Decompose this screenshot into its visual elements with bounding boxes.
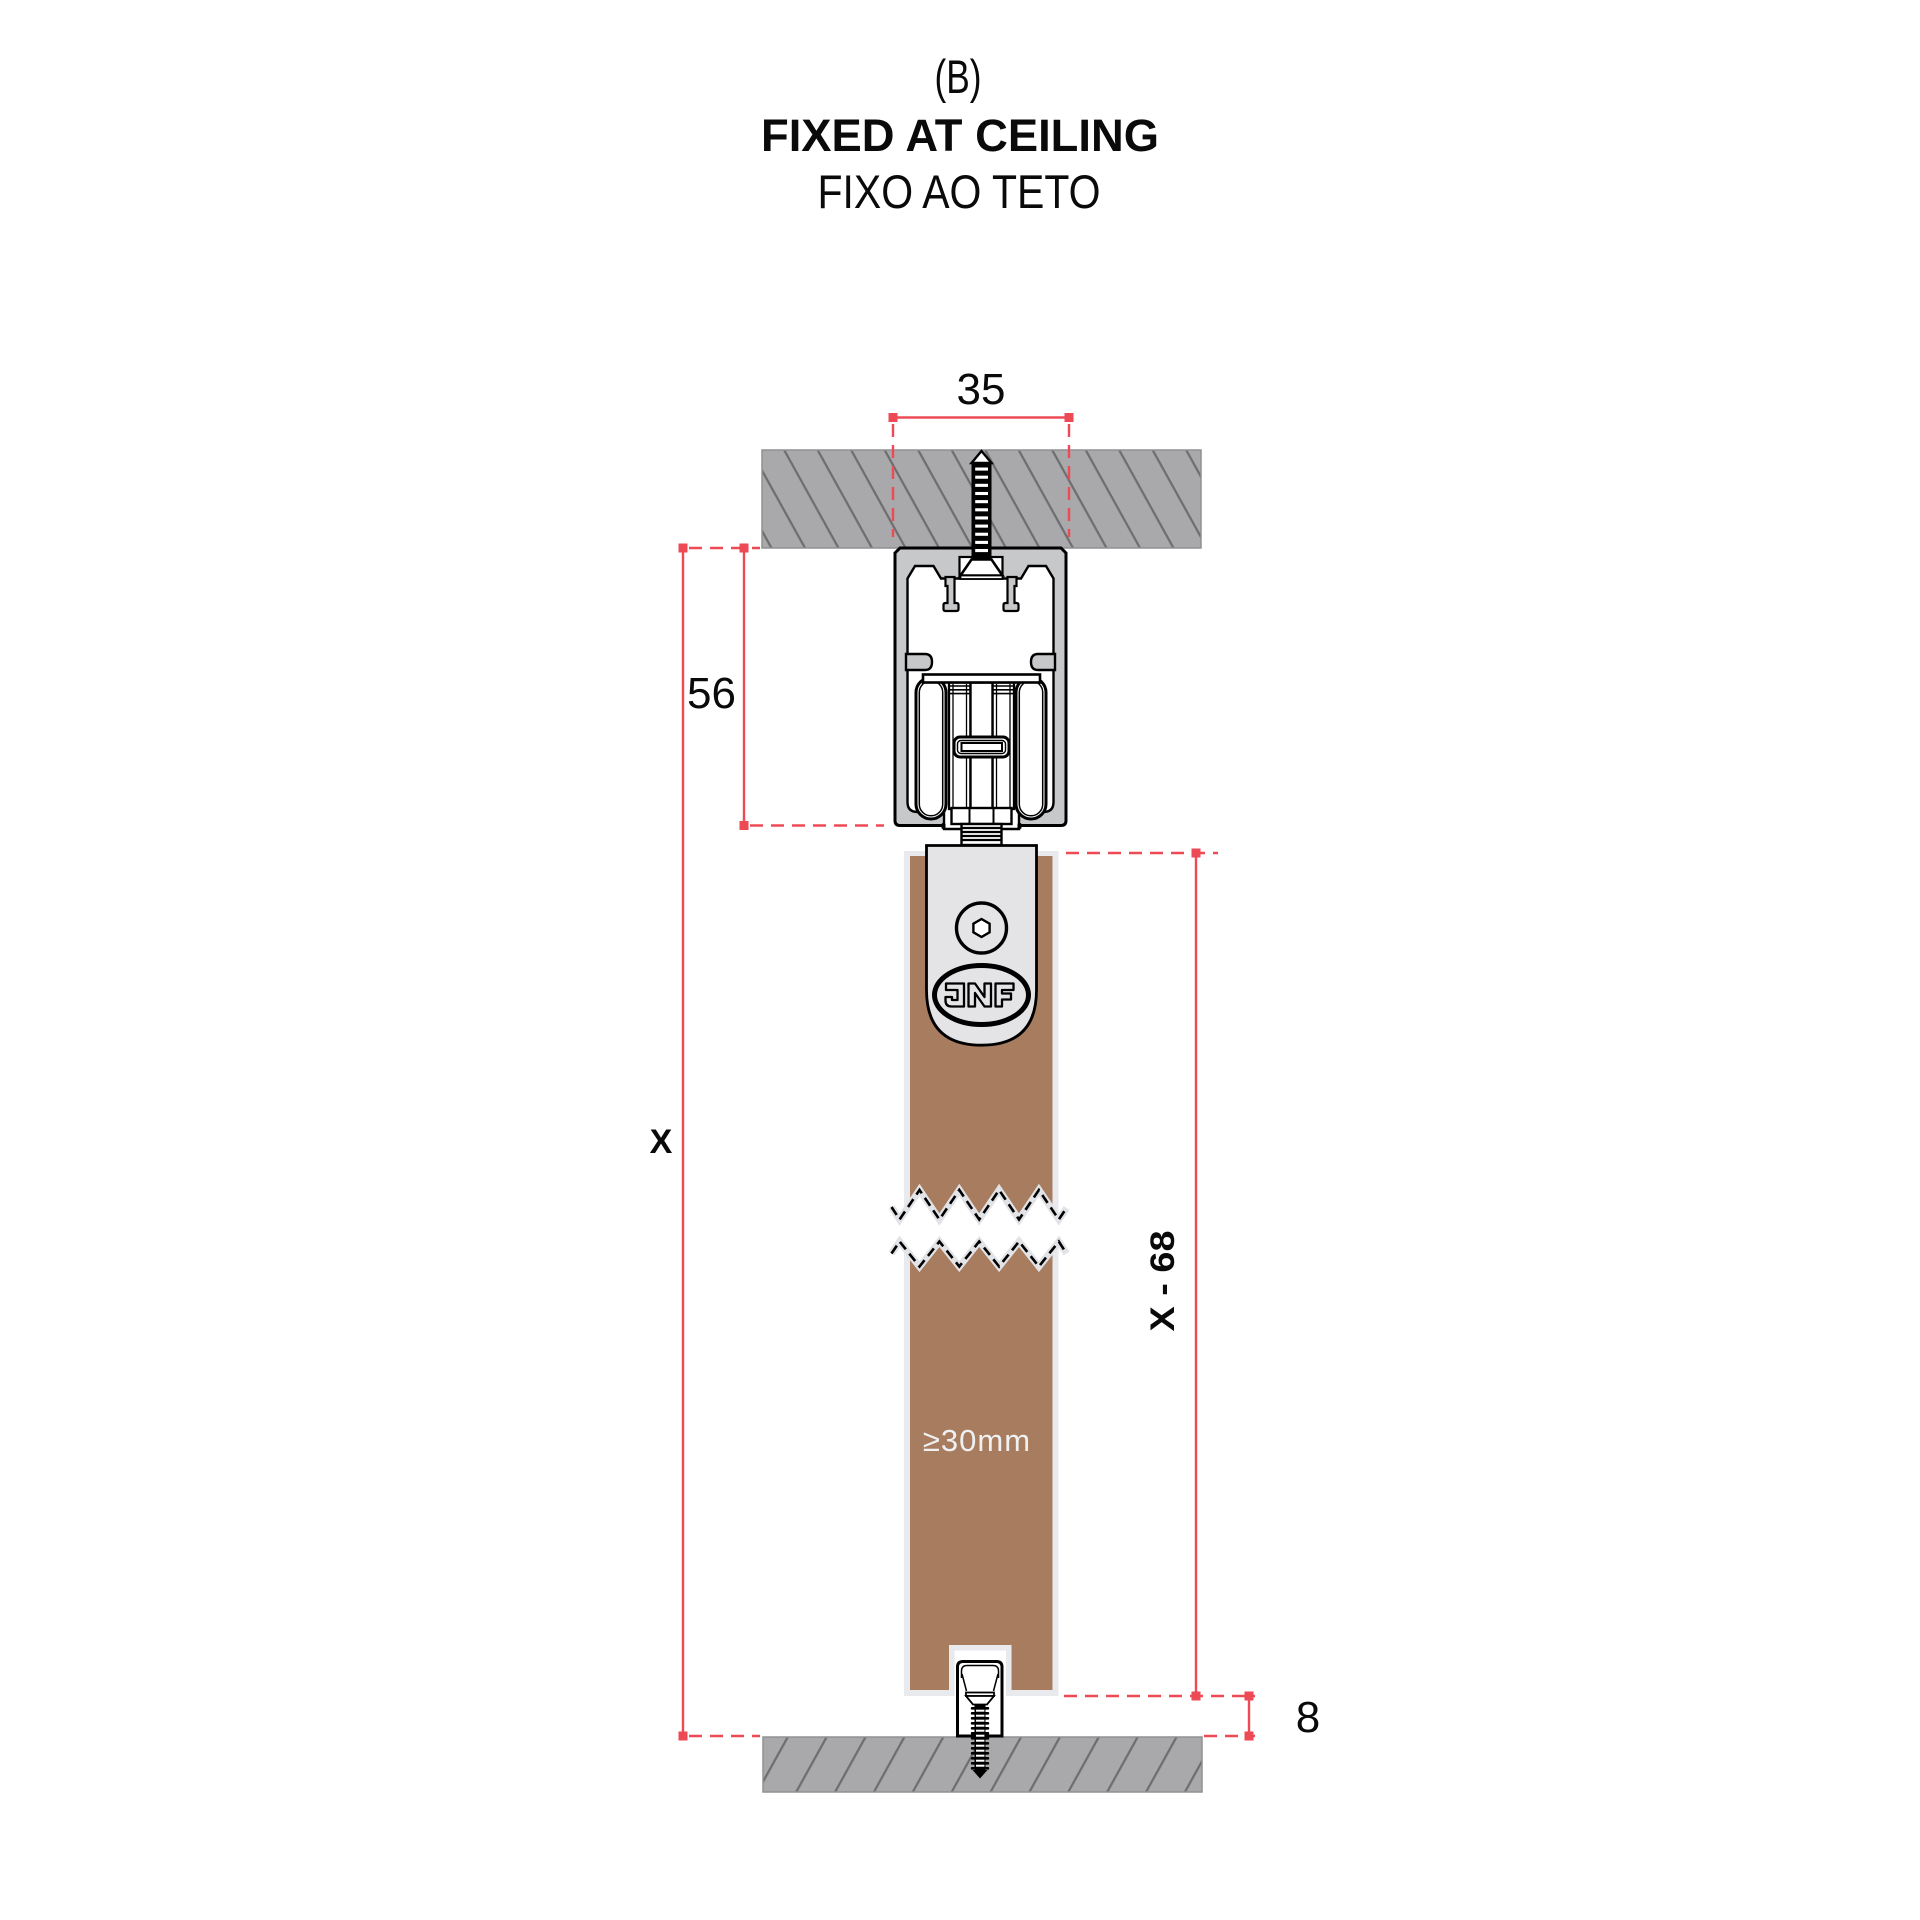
svg-text:35: 35 — [957, 365, 1006, 414]
svg-text:8: 8 — [1296, 1693, 1320, 1742]
svg-text:X: X — [650, 1123, 673, 1161]
svg-text:FIXED AT CEILING: FIXED AT CEILING — [761, 110, 1159, 161]
svg-text:X - 68: X - 68 — [1144, 1231, 1182, 1332]
svg-text:(B): (B) — [935, 50, 982, 103]
svg-text:≥30mm: ≥30mm — [923, 1423, 1031, 1458]
svg-text:56: 56 — [687, 669, 736, 718]
svg-text:FIXO AO TETO: FIXO AO TETO — [818, 165, 1101, 218]
